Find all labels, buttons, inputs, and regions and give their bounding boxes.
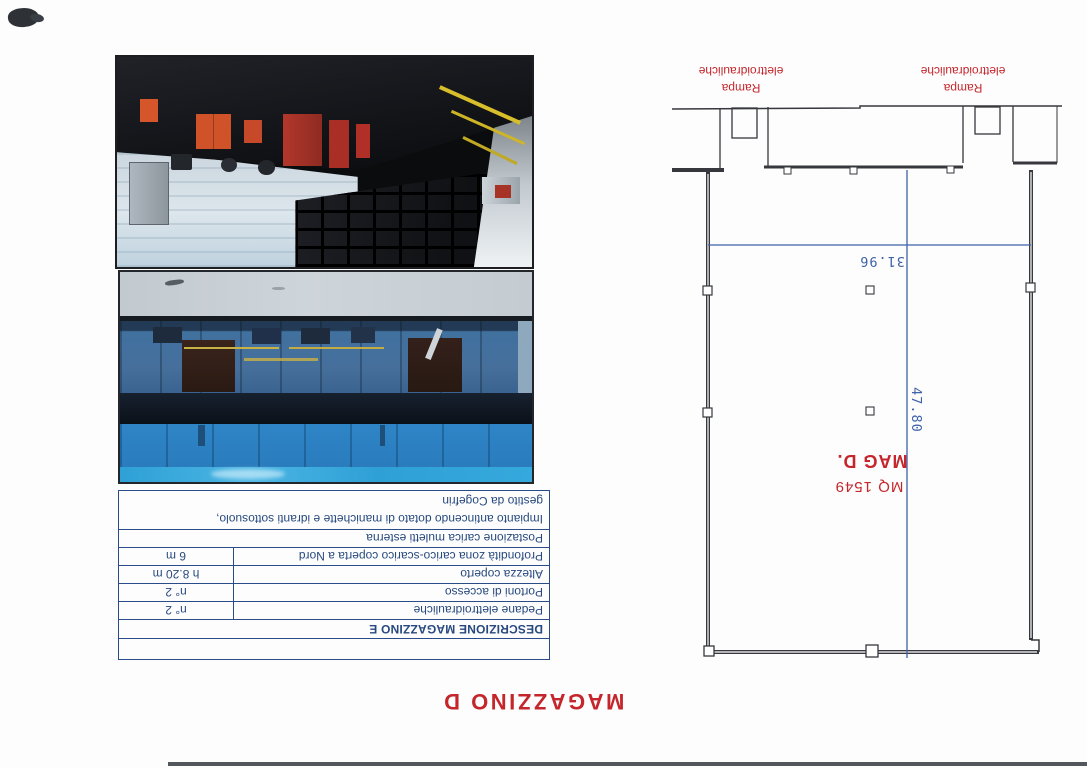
- column-marker: [703, 408, 712, 417]
- photo2-quay-mark: [380, 425, 386, 446]
- photo1-red-cabinet: [356, 124, 371, 158]
- photo1-hose-reel: [258, 160, 275, 175]
- table-row-empty: [119, 638, 549, 659]
- dock-fitting: [784, 167, 791, 174]
- column-marker: [1026, 283, 1035, 292]
- photo1-red-cabinet: [329, 120, 350, 168]
- table-row-value: n° 2: [119, 584, 234, 601]
- table-row: Pedane elettroidrauliche n° 2: [119, 601, 549, 619]
- note-line-1: Impianto antincendo dotato di manichette…: [216, 509, 543, 526]
- interior-column: [866, 286, 874, 294]
- quay-edge-line: [672, 106, 1062, 109]
- ramp1-outline: [732, 108, 757, 138]
- depth-dimension-label: 47.80: [908, 387, 924, 433]
- table-header-label: DESCRIZIONE MAGAZZINO E: [119, 620, 549, 639]
- table-row-note: Impianto antincendo dotato di manichette…: [119, 491, 549, 529]
- column-marker: [703, 286, 712, 295]
- photo2-water-streak: [211, 469, 285, 478]
- scan-edge-line: [168, 762, 1087, 766]
- dock-fitting: [947, 166, 954, 173]
- interior-column: [866, 407, 874, 415]
- room-area-label: MQ 1549: [835, 478, 904, 495]
- photo1-orange-box: [140, 99, 159, 122]
- description-table-border: DESCRIZIONE MAGAZZINO E Pedane elettroid…: [118, 490, 550, 660]
- table-row-label: Profondità zona carico-scarico coperta a…: [234, 548, 549, 565]
- table-row-label: Altezza coperto: [234, 566, 549, 583]
- corner-column: [704, 646, 714, 656]
- table-row: Portoni di accesso n° 2: [119, 583, 549, 601]
- room-name-label: MAG D.: [837, 451, 908, 471]
- page-title: MAGAZZINO D: [423, 682, 643, 720]
- scanned-page: DESCRIZIONE MAGAZZINO E Pedane elettroid…: [0, 0, 1087, 768]
- table-row: Profondità zona carico-scarico coperta a…: [119, 547, 549, 565]
- table-row-value: h 8.20 m: [119, 566, 234, 583]
- photo2-shadow-band: [120, 393, 532, 425]
- width-dimension-label: 31.96: [859, 253, 905, 269]
- photo2-facade-edge: [518, 321, 532, 392]
- table-row-label: Portoni di accesso: [234, 584, 549, 601]
- photo2-window-band: [301, 328, 330, 345]
- table-row-value: n° 2: [119, 602, 234, 619]
- table-row-value: 6 m: [119, 548, 234, 565]
- wall-column: [866, 645, 878, 657]
- photo1-equipment: [171, 154, 192, 171]
- photo2-water: [120, 467, 532, 482]
- description-table: DESCRIZIONE MAGAZZINO E Pedane elettroid…: [118, 490, 550, 660]
- floor-plan: 31.96 47.80 MAG D. MQ 1549: [660, 55, 1070, 670]
- dock-fitting: [850, 167, 857, 174]
- photo1-orange-box: [196, 114, 231, 150]
- photo-warehouse-interior: [115, 55, 534, 269]
- photo2-yellow-railing: [289, 347, 384, 350]
- table-row: Postazione carica muletti esterna: [119, 529, 549, 547]
- photo2-quay-wall: [120, 424, 532, 467]
- photo2-window-band: [153, 327, 182, 344]
- photo-warehouse-facade: [118, 270, 534, 484]
- photo1-orange-box: [244, 120, 263, 143]
- table-row: Altezza coperto h 8.20 m: [119, 565, 549, 583]
- table-row-label: Pedane elettroidrauliche: [234, 602, 549, 619]
- photo2-mark: [272, 287, 284, 290]
- ramp2-outline: [975, 107, 1000, 134]
- photo1-gray-cabinet: [129, 162, 168, 225]
- photo1-far-container: [495, 185, 512, 198]
- photo2-window-band: [351, 327, 376, 344]
- photo2-yellow-railing: [184, 347, 279, 350]
- note-line-2: gestito da Cogefrin: [442, 492, 543, 509]
- table-row-label: Postazione carica muletti esterna: [119, 530, 549, 547]
- photo2-yellow-railing: [244, 358, 318, 361]
- photo2-quay-mark: [198, 425, 205, 446]
- photo1-red-door: [283, 114, 322, 167]
- table-row-header: DESCRIZIONE MAGAZZINO E: [119, 619, 549, 639]
- photo2-window-band: [252, 328, 281, 345]
